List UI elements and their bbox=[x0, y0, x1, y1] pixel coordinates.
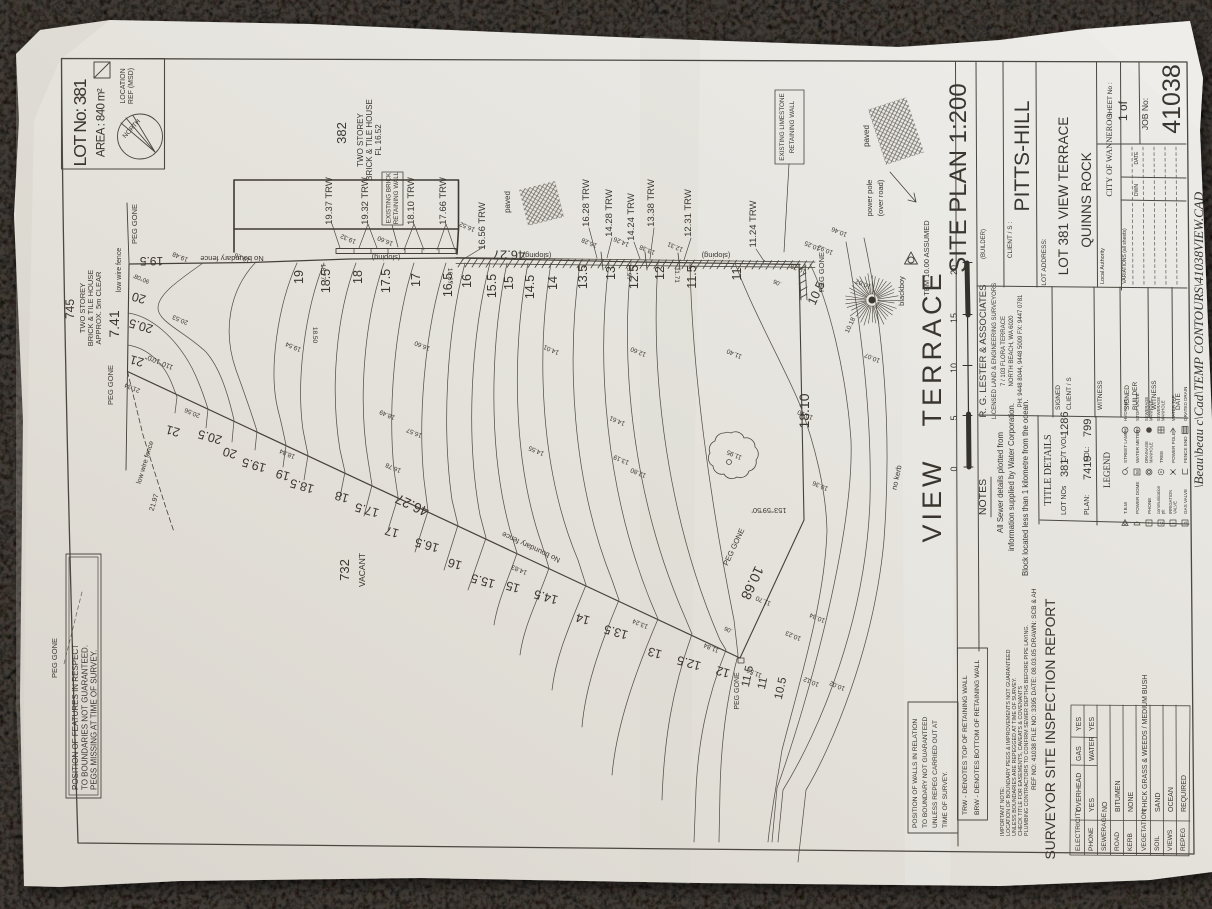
svg-text:RETAINING WALL: RETAINING WALL bbox=[393, 171, 400, 224]
svg-text:POWER POLE: POWER POLE bbox=[1171, 432, 1176, 463]
svg-text:17.5: 17.5 bbox=[379, 269, 393, 293]
svg-text:153°59'50': 153°59'50' bbox=[751, 506, 787, 515]
svg-text:STREET LAMP: STREET LAMP bbox=[1123, 431, 1128, 463]
svg-text:LOCATION: LOCATION bbox=[120, 68, 127, 103]
svg-text:DATE: DATE bbox=[1175, 392, 1182, 410]
svg-text:TITLE DETAILS: TITLE DETAILS bbox=[1043, 434, 1054, 505]
svg-text:TO BOUNDARY NOT GUARANTEED: TO BOUNDARY NOT GUARANTEED bbox=[922, 717, 929, 828]
svg-text:CLIENT / S: CLIENT / S bbox=[1066, 377, 1073, 410]
svg-text:VALVE: VALVE bbox=[1173, 501, 1178, 514]
svg-text:R. G. LESTER & ASSOCIATES: R. G. LESTER & ASSOCIATES bbox=[978, 285, 989, 418]
svg-text:RETAINING WALL: RETAINING WALL bbox=[789, 100, 796, 153]
svg-text:SEWERAGE: SEWERAGE bbox=[1101, 812, 1108, 851]
svg-text:TWO STOREY: TWO STOREY bbox=[356, 113, 365, 167]
svg-text:BRW - DENOTES BOTTOM OF RETAIN: BRW - DENOTES BOTTOM OF RETAINING WALL bbox=[974, 659, 981, 815]
svg-text:(sloping): (sloping) bbox=[701, 251, 730, 260]
svg-text:13: 13 bbox=[604, 266, 618, 280]
svg-text:QUINNS ROCK: QUINNS ROCK bbox=[1079, 152, 1094, 247]
svg-text:18: 18 bbox=[351, 270, 365, 284]
svg-text:JOB No:: JOB No: bbox=[1140, 98, 1150, 130]
svg-text:17.66 TRW: 17.66 TRW bbox=[438, 177, 449, 225]
svg-text:No boundary fence: No boundary fence bbox=[200, 254, 263, 263]
svg-text:C: C bbox=[1159, 521, 1164, 524]
svg-text:DWN: DWN bbox=[1134, 184, 1140, 196]
svg-text:LOT 381 VIEW TERRACE: LOT 381 VIEW TERRACE bbox=[1056, 117, 1071, 276]
svg-text:11.5: 11.5 bbox=[685, 265, 699, 288]
svg-text:11.24 TRW: 11.24 TRW bbox=[748, 200, 759, 247]
svg-text:15: 15 bbox=[949, 313, 959, 323]
svg-text:SAND: SAND bbox=[1155, 793, 1162, 812]
svg-text:G: G bbox=[1183, 521, 1188, 525]
svg-text:HYDRANT: HYDRANT bbox=[1123, 399, 1128, 421]
svg-text:LEGEND: LEGEND bbox=[1102, 452, 1112, 488]
svg-text:SIGNED: SIGNED bbox=[1055, 385, 1062, 410]
svg-text:16.67: 16.67 bbox=[446, 268, 453, 285]
svg-text:13.5: 13.5 bbox=[576, 265, 590, 289]
svg-text:DATE: DATE bbox=[1134, 151, 1140, 165]
svg-text:H: H bbox=[1123, 428, 1128, 431]
svg-text:41038: 41038 bbox=[1158, 64, 1186, 134]
svg-text:POSITION OF FEATURES IN RESPEC: POSITION OF FEATURES IN RESPECT bbox=[71, 644, 80, 790]
svg-text:18.10 TRW: 18.10 TRW bbox=[406, 177, 417, 225]
svg-text:19.5: 19.5 bbox=[139, 254, 163, 268]
svg-text:C/T VOL:: C/T VOL: bbox=[1061, 433, 1068, 462]
svg-text:PEG GONE: PEG GONE bbox=[50, 638, 59, 678]
svg-text:SITE PLAN 1:200: SITE PLAN 1:200 bbox=[945, 83, 972, 272]
svg-text:VIEW TERRACE: VIEW TERRACE bbox=[917, 269, 947, 542]
svg-text:1 of: 1 of bbox=[1116, 100, 1130, 121]
svg-text:NOTES: NOTES bbox=[977, 479, 989, 515]
svg-text:GAS: GAS bbox=[1076, 746, 1083, 761]
svg-text:14.24 TRW: 14.24 TRW bbox=[626, 193, 637, 241]
svg-text:TREE: TREE bbox=[1159, 451, 1164, 463]
svg-text:TIME OF SURVEY.: TIME OF SURVEY. bbox=[942, 771, 949, 828]
svg-text:WATER TAP: WATER TAP bbox=[1171, 395, 1176, 421]
svg-text:SHEET No :: SHEET No : bbox=[1107, 82, 1114, 117]
svg-text:information supplied by Water: information supplied by Water Corporatio… bbox=[1007, 403, 1016, 551]
svg-text:(BUILDER): (BUILDER) bbox=[981, 229, 987, 259]
svg-text:REF NO: 41038 FILE NO: 3395 DA: REF NO: 41038 FILE NO: 3395 DATE: 08.03.… bbox=[1031, 588, 1038, 790]
svg-text:PHONE: PHONE bbox=[1147, 498, 1152, 514]
svg-text:0: 0 bbox=[949, 466, 959, 471]
svg-text:MANHOLE: MANHOLE bbox=[1161, 400, 1166, 421]
svg-text:ELECTRICITY: ELECTRICITY bbox=[1075, 808, 1082, 851]
svg-text:12.31 TRW: 12.31 TRW bbox=[683, 189, 694, 237]
svg-text:15: 15 bbox=[502, 276, 516, 290]
svg-text:BRICK & TILE HOUSE: BRICK & TILE HOUSE bbox=[365, 99, 374, 181]
svg-text:AREA : 840 m²: AREA : 840 m² bbox=[96, 88, 108, 157]
svg-text:PH: 9448 8044, 9448 5009 FX:: PH: 9448 8044, 9448 5009 FX: 9447 0781 bbox=[1018, 294, 1024, 407]
svg-text:381: 381 bbox=[1059, 459, 1071, 477]
svg-text:EXISTING LIMESTONE: EXISTING LIMESTONE bbox=[779, 93, 786, 160]
svg-text:TRW - DENOTES TOP OF RETAINING: TRW - DENOTES TOP OF RETAINING WALL bbox=[962, 675, 969, 815]
svg-text:18.77: 18.77 bbox=[319, 264, 326, 281]
svg-text:5: 5 bbox=[949, 415, 959, 420]
svg-text:799: 799 bbox=[1082, 419, 1094, 437]
svg-text:STOP VALVE: STOP VALVE bbox=[1135, 393, 1140, 421]
svg-text:T.B.M: T.B.M bbox=[1123, 502, 1128, 514]
svg-text:LICENSED LAND & ENGINEERING SU: LICENSED LAND & ENGINEERING SURVEYORS bbox=[992, 283, 998, 419]
svg-text:19.37 TRW: 19.37 TRW bbox=[324, 177, 335, 225]
svg-text:14.28 TRW: 14.28 TRW bbox=[604, 189, 615, 237]
svg-text:10: 10 bbox=[949, 363, 959, 373]
svg-text:VARIATIONS (all sheets): VARIATIONS (all sheets) bbox=[1122, 228, 1128, 284]
svg-text:REPEG: REPEG bbox=[1180, 828, 1187, 851]
svg-text:WITNESS: WITNESS bbox=[1097, 380, 1104, 410]
svg-text:SV: SV bbox=[1136, 427, 1140, 432]
svg-text:PHONE: PHONE bbox=[1088, 827, 1095, 851]
svg-text:19.32 TRW: 19.32 TRW bbox=[360, 177, 371, 225]
svg-text:11: 11 bbox=[756, 676, 770, 690]
svg-text:PEG GONE: PEG GONE bbox=[734, 672, 741, 710]
svg-text:17: 17 bbox=[409, 273, 423, 287]
svg-text:11.71: 11.71 bbox=[673, 267, 680, 283]
svg-text:T: T bbox=[1147, 521, 1152, 524]
svg-text:MANHOLE: MANHOLE bbox=[1149, 442, 1154, 463]
svg-text:VACANT: VACANT bbox=[357, 553, 367, 587]
svg-text:VIEWS: VIEWS bbox=[1167, 829, 1174, 851]
svg-text:YES: YES bbox=[1076, 717, 1083, 731]
svg-text:power pole: power pole bbox=[865, 180, 874, 217]
svg-text:KERB: KERB bbox=[1127, 832, 1134, 851]
svg-text:GRATED DRAIN: GRATED DRAIN bbox=[1183, 387, 1188, 421]
svg-text:732: 732 bbox=[337, 559, 352, 581]
svg-text:APPROX. 5m CLEAR: APPROX. 5m CLEAR bbox=[94, 271, 103, 345]
svg-text:13.38 TRW: 13.38 TRW bbox=[646, 179, 657, 227]
svg-text:TO BOUNDARIES NOT GUARANTEED.: TO BOUNDARIES NOT GUARANTEED. bbox=[81, 645, 90, 790]
svg-text:OVERHEAD: OVERHEAD bbox=[1076, 773, 1083, 812]
svg-text:paved: paved bbox=[503, 191, 512, 213]
svg-text:PLAN:: PLAN: bbox=[1084, 495, 1091, 515]
svg-text:CITY OF WANNEROO: CITY OF WANNEROO bbox=[1104, 113, 1114, 196]
svg-text:NORTH BEACH, WA 6020: NORTH BEACH, WA 6020 bbox=[1009, 315, 1015, 387]
svg-text:382: 382 bbox=[334, 122, 349, 144]
svg-text:POSITION OF WALLS IN RELATION: POSITION OF WALLS IN RELATION bbox=[912, 719, 919, 828]
svg-text:12: 12 bbox=[653, 266, 667, 280]
svg-text:Local Authority: Local Authority bbox=[1100, 248, 1106, 284]
svg-text:CLIENT / S :: CLIENT / S : bbox=[1007, 222, 1014, 259]
svg-text:MANHOLE: MANHOLE bbox=[1149, 400, 1154, 421]
svg-text:EXISTING BRICK: EXISTING BRICK bbox=[386, 172, 393, 223]
svg-text:13.97: 13.97 bbox=[625, 264, 632, 281]
svg-text:LOT ADDRESS:: LOT ADDRESS: bbox=[1041, 238, 1048, 285]
svg-text:LOT No: 381: LOT No: 381 bbox=[70, 79, 90, 166]
svg-text:46.27: 46.27 bbox=[493, 248, 526, 263]
svg-text:FL 16.52: FL 16.52 bbox=[374, 124, 383, 156]
svg-text:SURVEYOR SITE INSPECTION REPOR: SURVEYOR SITE INSPECTION REPORT bbox=[1043, 598, 1058, 859]
svg-text:PEGS MISSING AT TIME OF SURVEY: PEGS MISSING AT TIME OF SURVEY. bbox=[90, 650, 99, 790]
svg-text:(sloping): (sloping) bbox=[371, 253, 400, 262]
svg-text:SOIL: SOIL bbox=[1154, 836, 1161, 851]
svg-text:(over road): (over road) bbox=[876, 179, 885, 216]
svg-text:15.5: 15.5 bbox=[485, 274, 499, 298]
svg-text:14.5: 14.5 bbox=[523, 275, 537, 299]
svg-text:1286: 1286 bbox=[1059, 412, 1071, 436]
svg-text:GAS VALVE: GAS VALVE bbox=[1183, 489, 1188, 514]
svg-text:YES: YES bbox=[1089, 798, 1096, 812]
svg-text:REQUIRED: REQUIRED bbox=[1181, 775, 1188, 812]
svg-text:\Beau\beau c\Cad\TEMP CONTOURS: \Beau\beau c\Cad\TEMP CONTOURS\41038VIEW… bbox=[1191, 191, 1206, 488]
svg-text:UNLESS REPEG CARRIED OUT AT: UNLESS REPEG CARRIED OUT AT bbox=[932, 720, 939, 828]
svg-text:Block located less than 1 kilo: Block located less than 1 kilometre from… bbox=[1021, 400, 1030, 576]
svg-text:PITTS-HILL: PITTS-HILL bbox=[1011, 101, 1034, 212]
svg-text:745: 745 bbox=[63, 299, 77, 319]
svg-text:16: 16 bbox=[460, 274, 474, 288]
svg-text:PLUMBING CONTRACTORS TO CONFIR: PLUMBING CONTRACTORS TO CONFIRM SEWER DE… bbox=[1024, 625, 1030, 836]
svg-text:14: 14 bbox=[546, 276, 560, 290]
svg-text:(sloping): (sloping) bbox=[522, 251, 551, 260]
svg-text:LOT NOs: LOT NOs bbox=[1061, 485, 1068, 515]
svg-text:All Sewer details plotted from: All Sewer details plotted from bbox=[996, 432, 1005, 533]
svg-text:16.56 TRW: 16.56 TRW bbox=[477, 202, 488, 250]
svg-text:VEGETATION: VEGETATION bbox=[1141, 809, 1148, 851]
svg-text:paved: paved bbox=[862, 125, 871, 147]
svg-text:YES: YES bbox=[1089, 717, 1096, 731]
svg-text:11: 11 bbox=[730, 267, 744, 280]
svg-text:low wire fence: low wire fence bbox=[116, 248, 123, 292]
svg-text:WATER: WATER bbox=[1089, 737, 1096, 762]
svg-text:THICK GRASS & WEEDS / MEDIUM B: THICK GRASS & WEEDS / MEDIUM BUSH bbox=[1142, 675, 1149, 812]
svg-text:19: 19 bbox=[292, 270, 306, 284]
svg-text:7.41: 7.41 bbox=[106, 310, 122, 337]
svg-text:POWER DOME: POWER DOME bbox=[1135, 482, 1140, 514]
svg-text:OCEAN: OCEAN bbox=[1168, 787, 1175, 812]
svg-text:16.28 TRW: 16.28 TRW bbox=[581, 179, 592, 227]
svg-text:BITUMEN: BITUMEN bbox=[1115, 781, 1122, 813]
svg-text:ROAD: ROAD bbox=[1114, 832, 1121, 851]
svg-text:NONE: NONE bbox=[1128, 791, 1135, 812]
svg-text:blackboy: blackboy bbox=[897, 276, 906, 306]
svg-text:I: I bbox=[1171, 522, 1176, 523]
svg-text:FENCE END: FENCE END bbox=[1183, 436, 1188, 463]
svg-text:REF (MSD): REF (MSD) bbox=[128, 68, 135, 104]
svg-text:PEG GONE: PEG GONE bbox=[130, 204, 139, 244]
svg-text:18.50: 18.50 bbox=[311, 327, 318, 344]
svg-text:7419: 7419 bbox=[1082, 456, 1094, 480]
svg-text:PEG GONE: PEG GONE bbox=[106, 365, 115, 405]
svg-text:WATER METER: WATER METER bbox=[1135, 429, 1140, 463]
svg-text:7 / 103 FLORA TERRACE: 7 / 103 FLORA TERRACE bbox=[1001, 316, 1007, 386]
svg-text:NO: NO bbox=[1102, 801, 1109, 812]
